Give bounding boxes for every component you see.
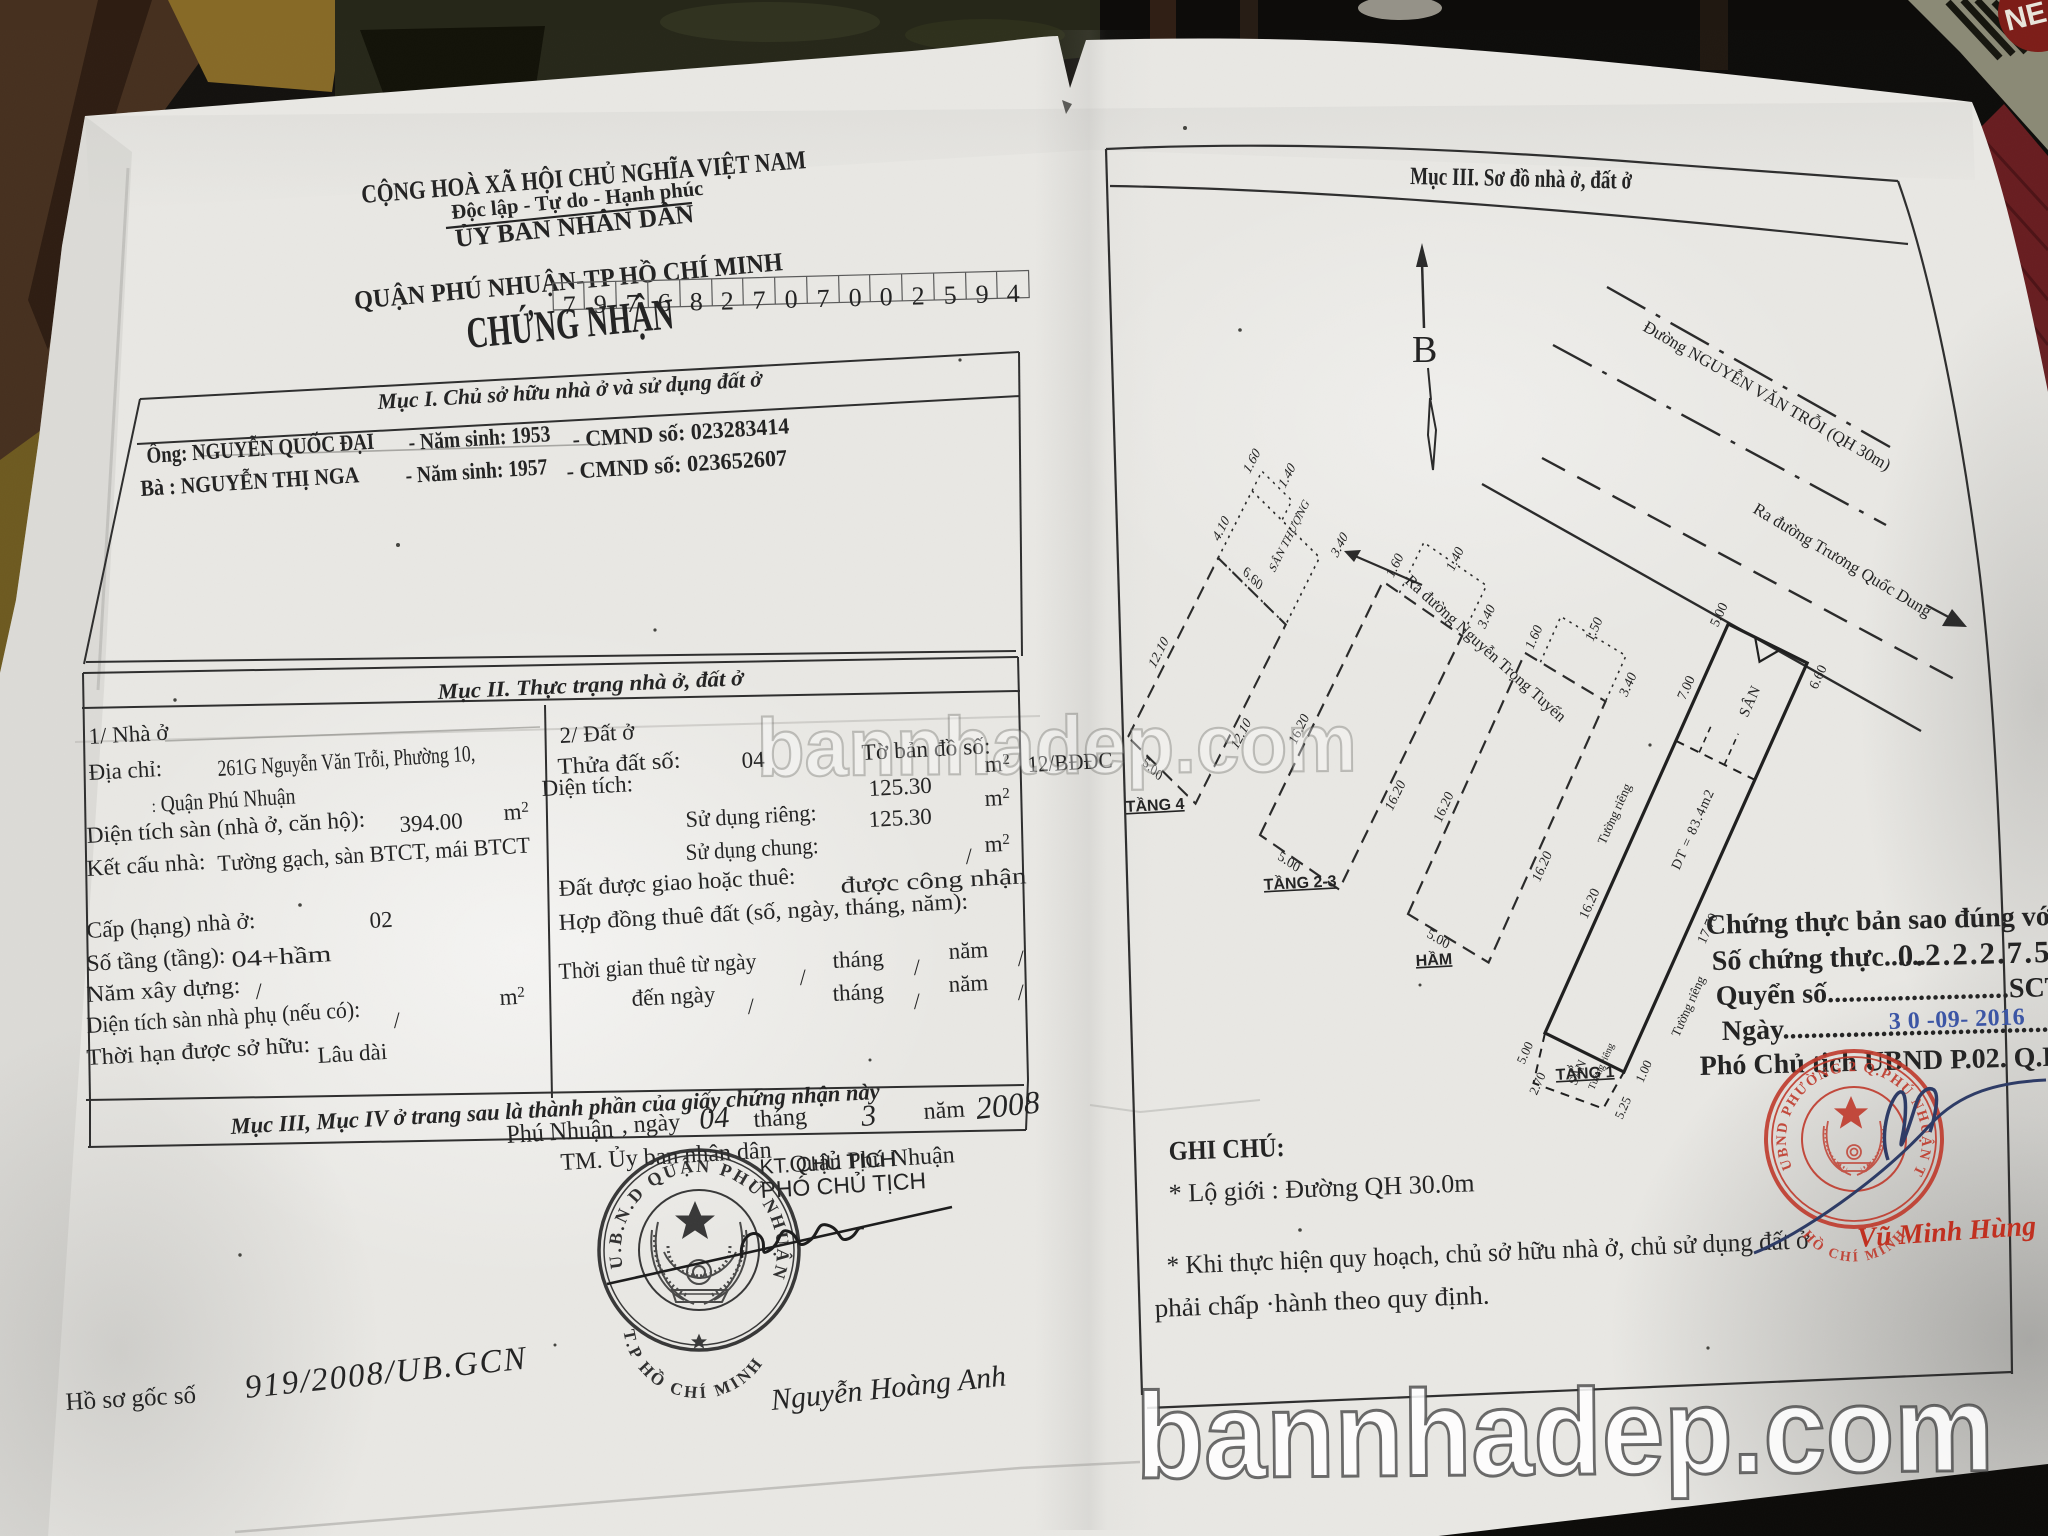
- svg-text:bannhadep.com: bannhadep.com: [1135, 1361, 1994, 1504]
- svg-text:bannhadep.com: bannhadep.com: [756, 698, 1357, 794]
